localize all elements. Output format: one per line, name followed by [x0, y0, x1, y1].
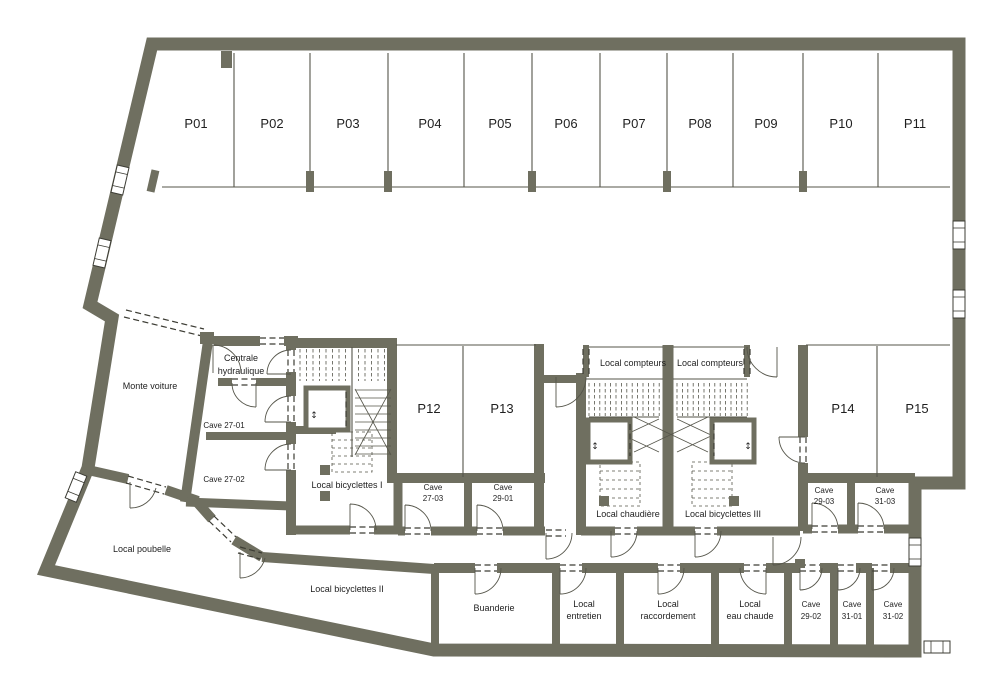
window-icon: [93, 238, 111, 268]
label-cave-29-01-2: 29-01: [493, 494, 514, 503]
floor-plan-svg: P01 P02 P03 P04 P05 P06 P07 P08 P09 P10 …: [0, 0, 1007, 699]
stair-treads: [355, 389, 747, 455]
pillar: [320, 465, 330, 475]
label-local-entretien-1: Local: [573, 599, 595, 609]
pillar: [384, 171, 392, 192]
label-p08: P08: [688, 116, 711, 131]
label-local-eau-chaude-2: eau chaude: [726, 611, 773, 621]
window-icon: [953, 221, 965, 249]
label-local-raccordement-1: Local: [657, 599, 679, 609]
label-local-chaudiere: Local chaudière: [596, 509, 660, 519]
pillar: [528, 171, 536, 192]
label-cave-31-03-1: Cave: [876, 486, 895, 495]
pillar: [663, 171, 671, 192]
label-p01: P01: [184, 116, 207, 131]
elevator-box-center-right: [712, 420, 754, 462]
elevator-box-west: [306, 388, 348, 430]
outer-walls: [46, 44, 959, 651]
label-local-bicyclettes-1: Local bicyclettes I: [311, 480, 382, 490]
label-local-bicyclettes-3: Local bicyclettes III: [685, 509, 761, 519]
label-cave-31-01-2: 31-01: [842, 612, 863, 621]
window-icon: [924, 641, 950, 653]
label-p04: P04: [418, 116, 441, 131]
pillar: [799, 171, 807, 192]
pillar: [320, 491, 330, 501]
label-cave-27-02: Cave 27-02: [203, 475, 245, 484]
label-cave-31-03-2: 31-03: [875, 497, 896, 506]
label-p09: P09: [754, 116, 777, 131]
label-p10: P10: [829, 116, 852, 131]
label-cave-27-03-1: Cave: [424, 483, 443, 492]
pillar: [599, 496, 609, 506]
door-arcs: [130, 345, 894, 594]
label-local-compteurs-right: Local compteurs: [677, 358, 744, 368]
label-cave-31-02-2: 31-02: [883, 612, 904, 621]
label-p07: P07: [622, 116, 645, 131]
label-p15: P15: [905, 401, 928, 416]
label-cave-31-01-1: Cave: [843, 600, 862, 609]
label-local-bicyclettes-2: Local bicyclettes II: [310, 584, 384, 594]
pillar: [306, 171, 314, 192]
label-local-poubelle: Local poubelle: [113, 544, 171, 554]
label-cave-29-02-1: Cave: [802, 600, 821, 609]
label-local-entretien-2: entretien: [566, 611, 601, 621]
window-icon: [909, 538, 921, 566]
label-cave-27-01: Cave 27-01: [203, 421, 245, 430]
label-local-raccordement-2: raccordement: [640, 611, 696, 621]
label-cave-29-03-1: Cave: [815, 486, 834, 495]
label-p14: P14: [831, 401, 854, 416]
label-cave-29-02-2: 29-02: [801, 612, 822, 621]
label-cave-29-01-1: Cave: [494, 483, 513, 492]
elevator-arrows-icon: ↕: [310, 411, 318, 421]
pillar: [147, 169, 160, 192]
label-local-compteurs-left: Local compteurs: [600, 358, 667, 368]
floor-plan-canvas: P01 P02 P03 P04 P05 P06 P07 P08 P09 P10 …: [0, 0, 1007, 699]
window-icon: [953, 290, 965, 318]
label-cave-31-02-1: Cave: [884, 600, 903, 609]
label-monte-voiture: Monte voiture: [123, 381, 178, 391]
label-local-eau-chaude-1: Local: [739, 599, 761, 609]
elevator-box-center-left: [588, 420, 630, 462]
label-cave-27-03-2: 27-03: [423, 494, 444, 503]
wall-post: [200, 332, 214, 344]
wall-stub: [221, 51, 232, 68]
label-p03: P03: [336, 116, 359, 131]
label-p11: P11: [904, 116, 926, 131]
label-p12: P12: [417, 401, 440, 416]
elevator-arrows-icon: ↕: [744, 442, 752, 452]
pillar: [729, 496, 739, 506]
label-p13: P13: [490, 401, 513, 416]
label-p05: P05: [488, 116, 511, 131]
label-cave-29-03-2: 29-03: [814, 497, 835, 506]
wall-post: [795, 559, 805, 568]
label-p06: P06: [554, 116, 577, 131]
window-icon: [111, 165, 129, 195]
label-buanderie: Buanderie: [473, 603, 514, 613]
elevator-arrows-icon: ↕: [591, 442, 599, 452]
label-p02: P02: [260, 116, 283, 131]
label-centrale-hydraulique-2: hydraulique: [218, 366, 265, 376]
label-centrale-hydraulique-1: Centrale: [224, 353, 258, 363]
